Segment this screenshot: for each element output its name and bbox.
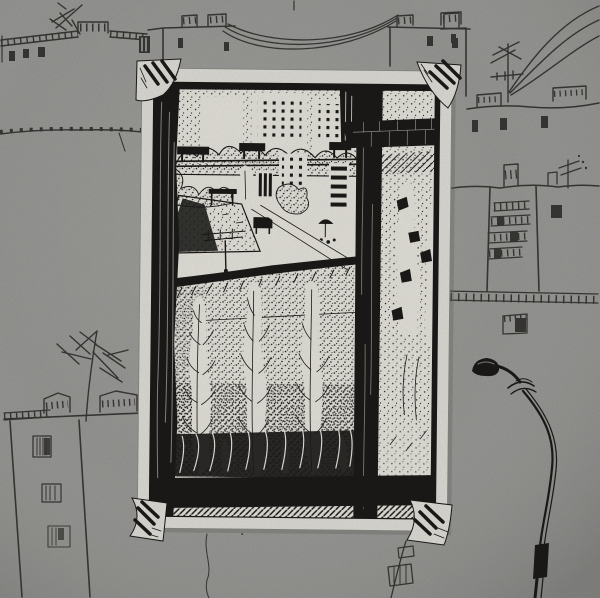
- artwork-canvas: [0, 0, 600, 598]
- artwork: [0, 0, 600, 598]
- print-grain: [0, 0, 600, 598]
